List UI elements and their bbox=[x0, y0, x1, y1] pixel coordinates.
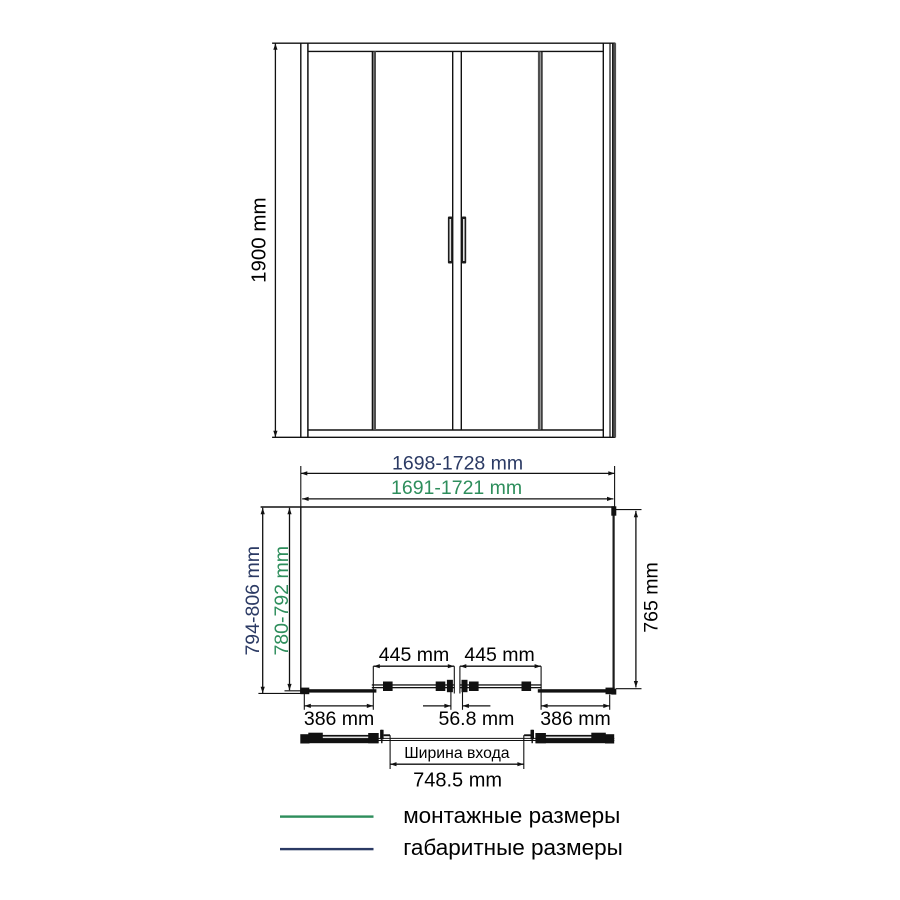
svg-text:монтажные размеры: монтажные размеры bbox=[403, 803, 620, 828]
svg-text:1900 mm: 1900 mm bbox=[247, 197, 270, 282]
svg-text:386 mm: 386 mm bbox=[304, 708, 374, 730]
svg-text:56.8 mm: 56.8 mm bbox=[438, 708, 514, 730]
svg-text:780-792 mm: 780-792 mm bbox=[271, 546, 293, 655]
svg-text:748.5 mm: 748.5 mm bbox=[413, 769, 502, 791]
svg-text:445 mm: 445 mm bbox=[464, 644, 534, 666]
svg-text:765 mm: 765 mm bbox=[641, 562, 663, 632]
svg-text:1691-1721 mm: 1691-1721 mm bbox=[391, 477, 522, 499]
svg-text:габаритные размеры: габаритные размеры bbox=[403, 835, 623, 860]
svg-text:Ширина входа: Ширина входа bbox=[404, 745, 510, 762]
svg-text:445 mm: 445 mm bbox=[379, 644, 449, 666]
svg-text:386 mm: 386 mm bbox=[540, 708, 610, 730]
svg-text:794-806 mm: 794-806 mm bbox=[242, 546, 264, 655]
svg-text:1698-1728 mm: 1698-1728 mm bbox=[392, 453, 523, 475]
